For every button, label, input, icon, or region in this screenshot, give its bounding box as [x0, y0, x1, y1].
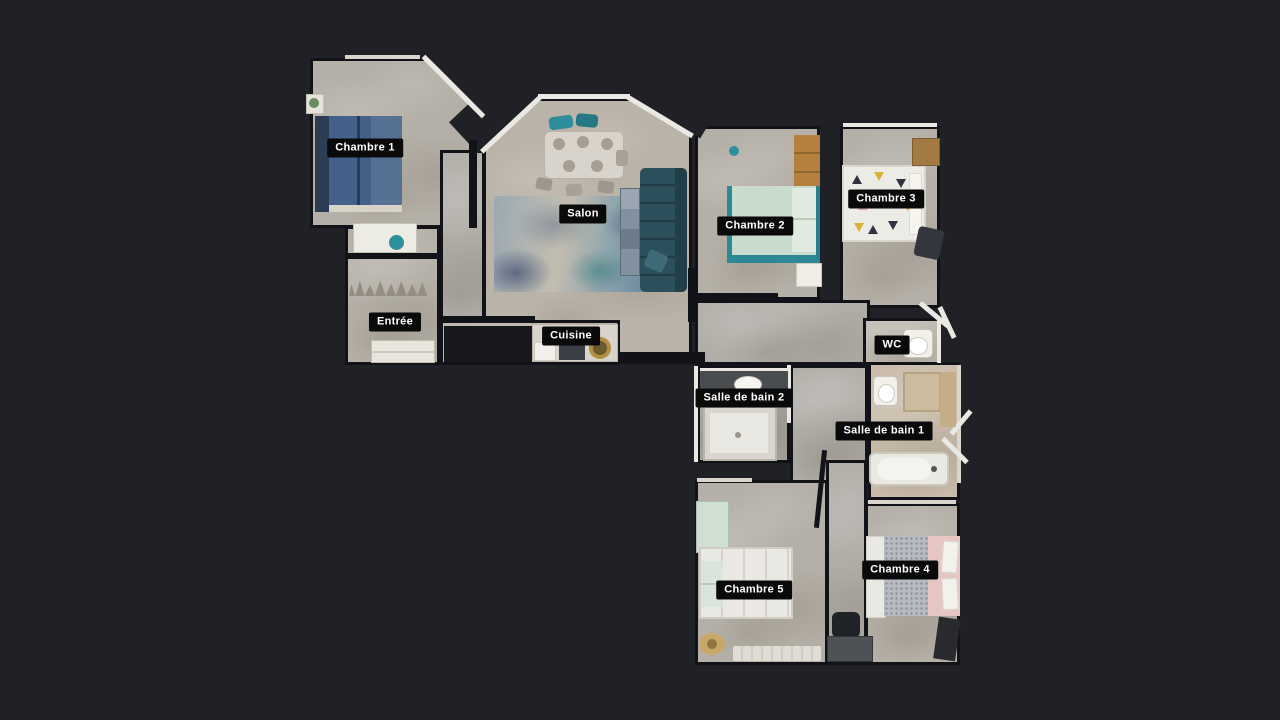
bed-highlight: [371, 116, 402, 212]
wall-chambre-5-top: [697, 478, 752, 482]
floor-corridor[interactable]: [695, 300, 870, 365]
room-label-salle-de-bain-1[interactable]: Salle de bain 1: [836, 422, 933, 441]
bed-chambre-1: [315, 116, 402, 212]
bed-pillow-1: [941, 540, 959, 573]
wall-salon-left: [469, 140, 477, 228]
room-label-cuisine[interactable]: Cuisine: [542, 327, 600, 346]
floorplan-canvas[interactable]: Chambre 1SalonChambre 2Chambre 3EntréeCu…: [0, 0, 1280, 720]
bed-sheet-fold: [329, 205, 402, 212]
bed-pillows: [792, 188, 816, 252]
wall-chambre-2-bottom: [698, 293, 778, 302]
shower-sdb2: [703, 406, 777, 461]
room-label-chambre-4[interactable]: Chambre 4: [862, 561, 938, 580]
plate: [591, 160, 603, 172]
triangle: [868, 225, 878, 234]
wall-desk-nook: [348, 253, 438, 259]
hat-chambre-5: [699, 633, 725, 655]
wall-salon-top: [538, 94, 630, 99]
toilet-bowl: [878, 384, 895, 403]
kitchen-counter-dark: [444, 326, 532, 362]
bathtub-basin: [877, 458, 931, 480]
chair-gray-3: [597, 180, 615, 194]
wall-salon-right: [688, 268, 698, 322]
room-label-salle-de-bain-2[interactable]: Salle de bain 2: [696, 389, 793, 408]
chair-chambre-4: [832, 612, 860, 638]
plate: [577, 136, 589, 148]
cabinet-chambre-5: [696, 501, 729, 553]
cabinet-sdb1: [940, 372, 956, 427]
wall-cuisine-top: [443, 316, 535, 322]
dining-table: [544, 131, 624, 179]
chair-teal-2: [575, 113, 598, 128]
chair-gray-4: [616, 150, 628, 166]
decor-chambre-2: [729, 146, 739, 156]
shower-drain: [735, 432, 741, 438]
plant-chambre-1: [309, 98, 319, 108]
triangle: [888, 221, 898, 230]
desk-chambre-1: [353, 223, 417, 253]
toilet-sdb1: [873, 376, 898, 406]
bathtub-sdb1: [869, 452, 949, 486]
wall-chambre-1-top: [345, 55, 420, 59]
wardrobe-chambre-2: [794, 135, 820, 191]
wall-sdb2-left: [694, 366, 698, 462]
room-label-salon[interactable]: Salon: [559, 205, 606, 224]
triangle: [874, 172, 884, 181]
chair-gray-1: [535, 177, 553, 192]
desk-chambre-4: [827, 636, 873, 662]
bed-seam: [357, 116, 360, 212]
shower-sdb1: [903, 372, 941, 412]
entry-bench: [371, 340, 435, 363]
room-label-chambre-5[interactable]: Chambre 5: [716, 581, 792, 600]
rug-chambre-5: [733, 646, 821, 661]
bathtub-faucet: [931, 466, 937, 472]
plate: [601, 138, 613, 150]
room-label-entree[interactable]: Entrée: [369, 313, 421, 332]
room-label-chambre-2[interactable]: Chambre 2: [717, 217, 793, 236]
room-label-chambre-1[interactable]: Chambre 1: [327, 139, 403, 158]
wall-chambre-4-top: [868, 500, 956, 504]
sofa: [640, 168, 687, 292]
room-label-wc[interactable]: WC: [875, 336, 910, 355]
desk-chambre-3: [912, 138, 940, 166]
room-label-chambre-3[interactable]: Chambre 3: [848, 190, 924, 209]
wall-wc-right: [937, 318, 941, 363]
plate: [563, 160, 575, 172]
chair-chambre-1: [389, 235, 404, 250]
bed-pillow-2: [941, 578, 959, 611]
wall-chambre-3-top: [843, 123, 937, 127]
triangle: [896, 179, 906, 188]
floor-west-hall[interactable]: [440, 150, 485, 326]
triangle: [854, 223, 864, 232]
chair-gray-2: [566, 183, 583, 196]
triangle: [852, 175, 862, 184]
wall-corridor-south: [617, 352, 705, 364]
chair-chambre-3: [913, 226, 945, 261]
plate: [553, 138, 565, 150]
wall-art: [620, 188, 640, 276]
toilet-bowl: [908, 337, 928, 355]
nightstand-chambre-2: [796, 263, 822, 287]
